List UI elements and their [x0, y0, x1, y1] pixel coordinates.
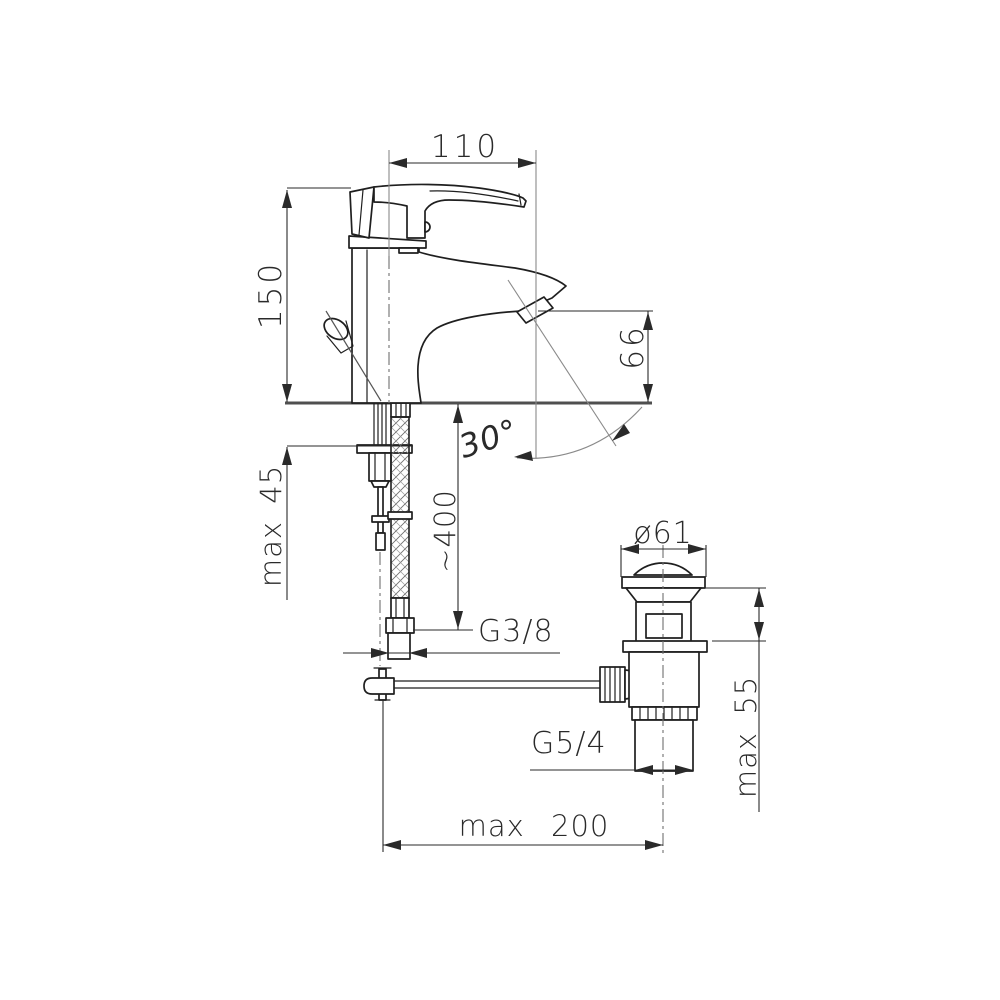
label-supply-thread: G3/8	[478, 614, 554, 649]
handle-button	[425, 222, 430, 232]
label-hose-length: ~400	[428, 489, 462, 573]
rod-joint	[364, 678, 394, 694]
label-waste-outlet-thread: G5/4	[531, 726, 607, 761]
overflow-window	[646, 614, 682, 638]
label-spray-angle: 30°	[454, 411, 523, 466]
rod-inlet-nut	[600, 667, 625, 702]
body-spout	[352, 248, 566, 403]
label-basin-thickness: max 55	[729, 676, 763, 798]
pull-rod	[378, 487, 383, 533]
waste-tailpipe	[635, 720, 693, 771]
label-spout-height: 66	[615, 324, 651, 369]
label-waste-cap-diameter: ø61	[633, 516, 693, 551]
mounting-nut	[369, 453, 391, 481]
g38-connector	[388, 633, 410, 659]
under-counter-assembly	[357, 386, 414, 659]
label-body-height: 150	[253, 261, 289, 329]
handle-lever	[374, 184, 526, 238]
faucet-technical-drawing: 110 150 66 30° max 45 ~400 G3/8 ø61 G5/4…	[0, 0, 1000, 1000]
label-deck-thickness: max 45	[254, 465, 288, 587]
waste-body	[622, 563, 707, 771]
hose-nut	[386, 618, 414, 633]
label-spout-reach: 110	[431, 129, 499, 165]
spray-axis	[508, 280, 616, 446]
supply-hose	[386, 403, 414, 659]
label-rod-reach: max 200	[459, 809, 610, 843]
drawing-svg: 110 150 66 30° max 45 ~400 G3/8 ø61 G5/4…	[0, 0, 1000, 1000]
faucet-body	[320, 184, 566, 403]
